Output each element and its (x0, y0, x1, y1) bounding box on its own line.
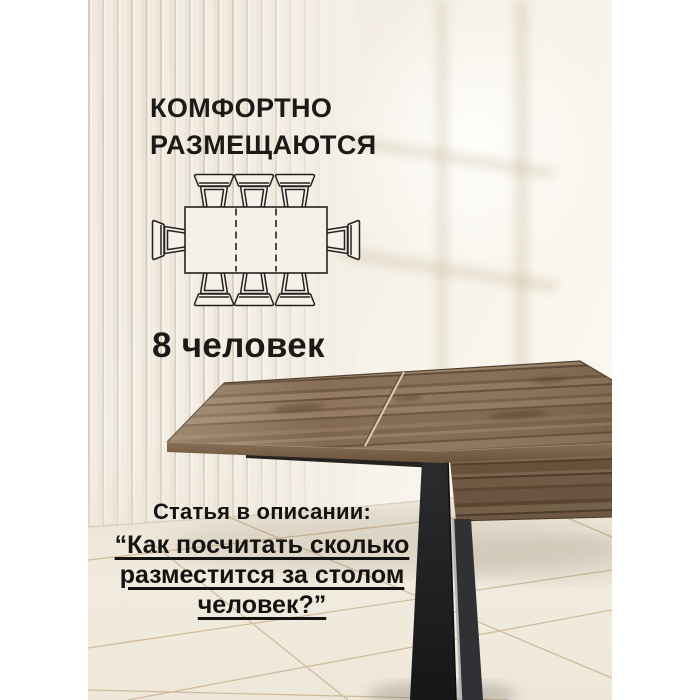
footer-intro: Статья в описании: (94, 499, 430, 525)
chair-icon (235, 272, 274, 306)
page-title-line2: РАЗМЕЩАЮТСЯ (150, 127, 377, 164)
capacity-number: 8 (152, 326, 172, 365)
chair-icon (276, 175, 315, 209)
footer-note: Статья в описании: “Как посчитать скольк… (94, 499, 430, 620)
page-title: КОМФОРТНО РАЗМЕЩАЮТСЯ (150, 90, 377, 164)
chair-icon (195, 175, 234, 209)
chair-icon (153, 221, 187, 260)
chair-icon (276, 272, 315, 306)
chair-icon (326, 221, 360, 260)
table-apron (450, 452, 612, 521)
table-seating-diagram (143, 170, 373, 310)
footer-quote-line2: разместится за столом (94, 560, 430, 590)
footer-quote-line3: человек?” (94, 590, 430, 620)
photo-card: КОМФОРТНО РАЗМЕЩАЮТСЯ (88, 0, 612, 700)
capacity-text: 8 человек (152, 326, 325, 366)
capacity-label: человек (182, 326, 325, 365)
chair-icon (195, 272, 234, 306)
footer-quote-line1: “Как посчитать сколько (94, 530, 430, 560)
chair-icon (235, 175, 274, 209)
page-title-line1: КОМФОРТНО (150, 90, 377, 127)
table-outline (185, 207, 327, 273)
product-card: КОМФОРТНО РАЗМЕЩАЮТСЯ (0, 0, 700, 700)
